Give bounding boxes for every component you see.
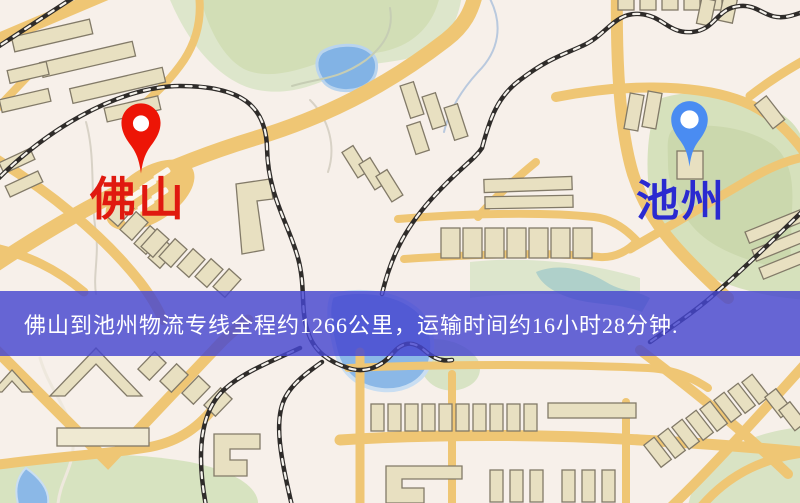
route-info-banner: 佛山到池州物流专线全程约1266公里，运输时间约16小时28分钟. <box>0 291 800 356</box>
chizhou-pin-icon <box>668 99 711 170</box>
map-screenshot: 佛山 池州 佛山到池州物流专线全程约1266公里，运输时间约16小时28分钟. <box>0 0 800 503</box>
route-info-text: 佛山到池州物流专线全程约1266公里，运输时间约16小时28分钟. <box>0 291 800 356</box>
map-illustration <box>0 0 800 503</box>
foshan-pin-icon <box>118 100 164 178</box>
chizhou-label: 池州 <box>636 181 726 224</box>
foshan-label: 佛山 <box>90 177 186 223</box>
